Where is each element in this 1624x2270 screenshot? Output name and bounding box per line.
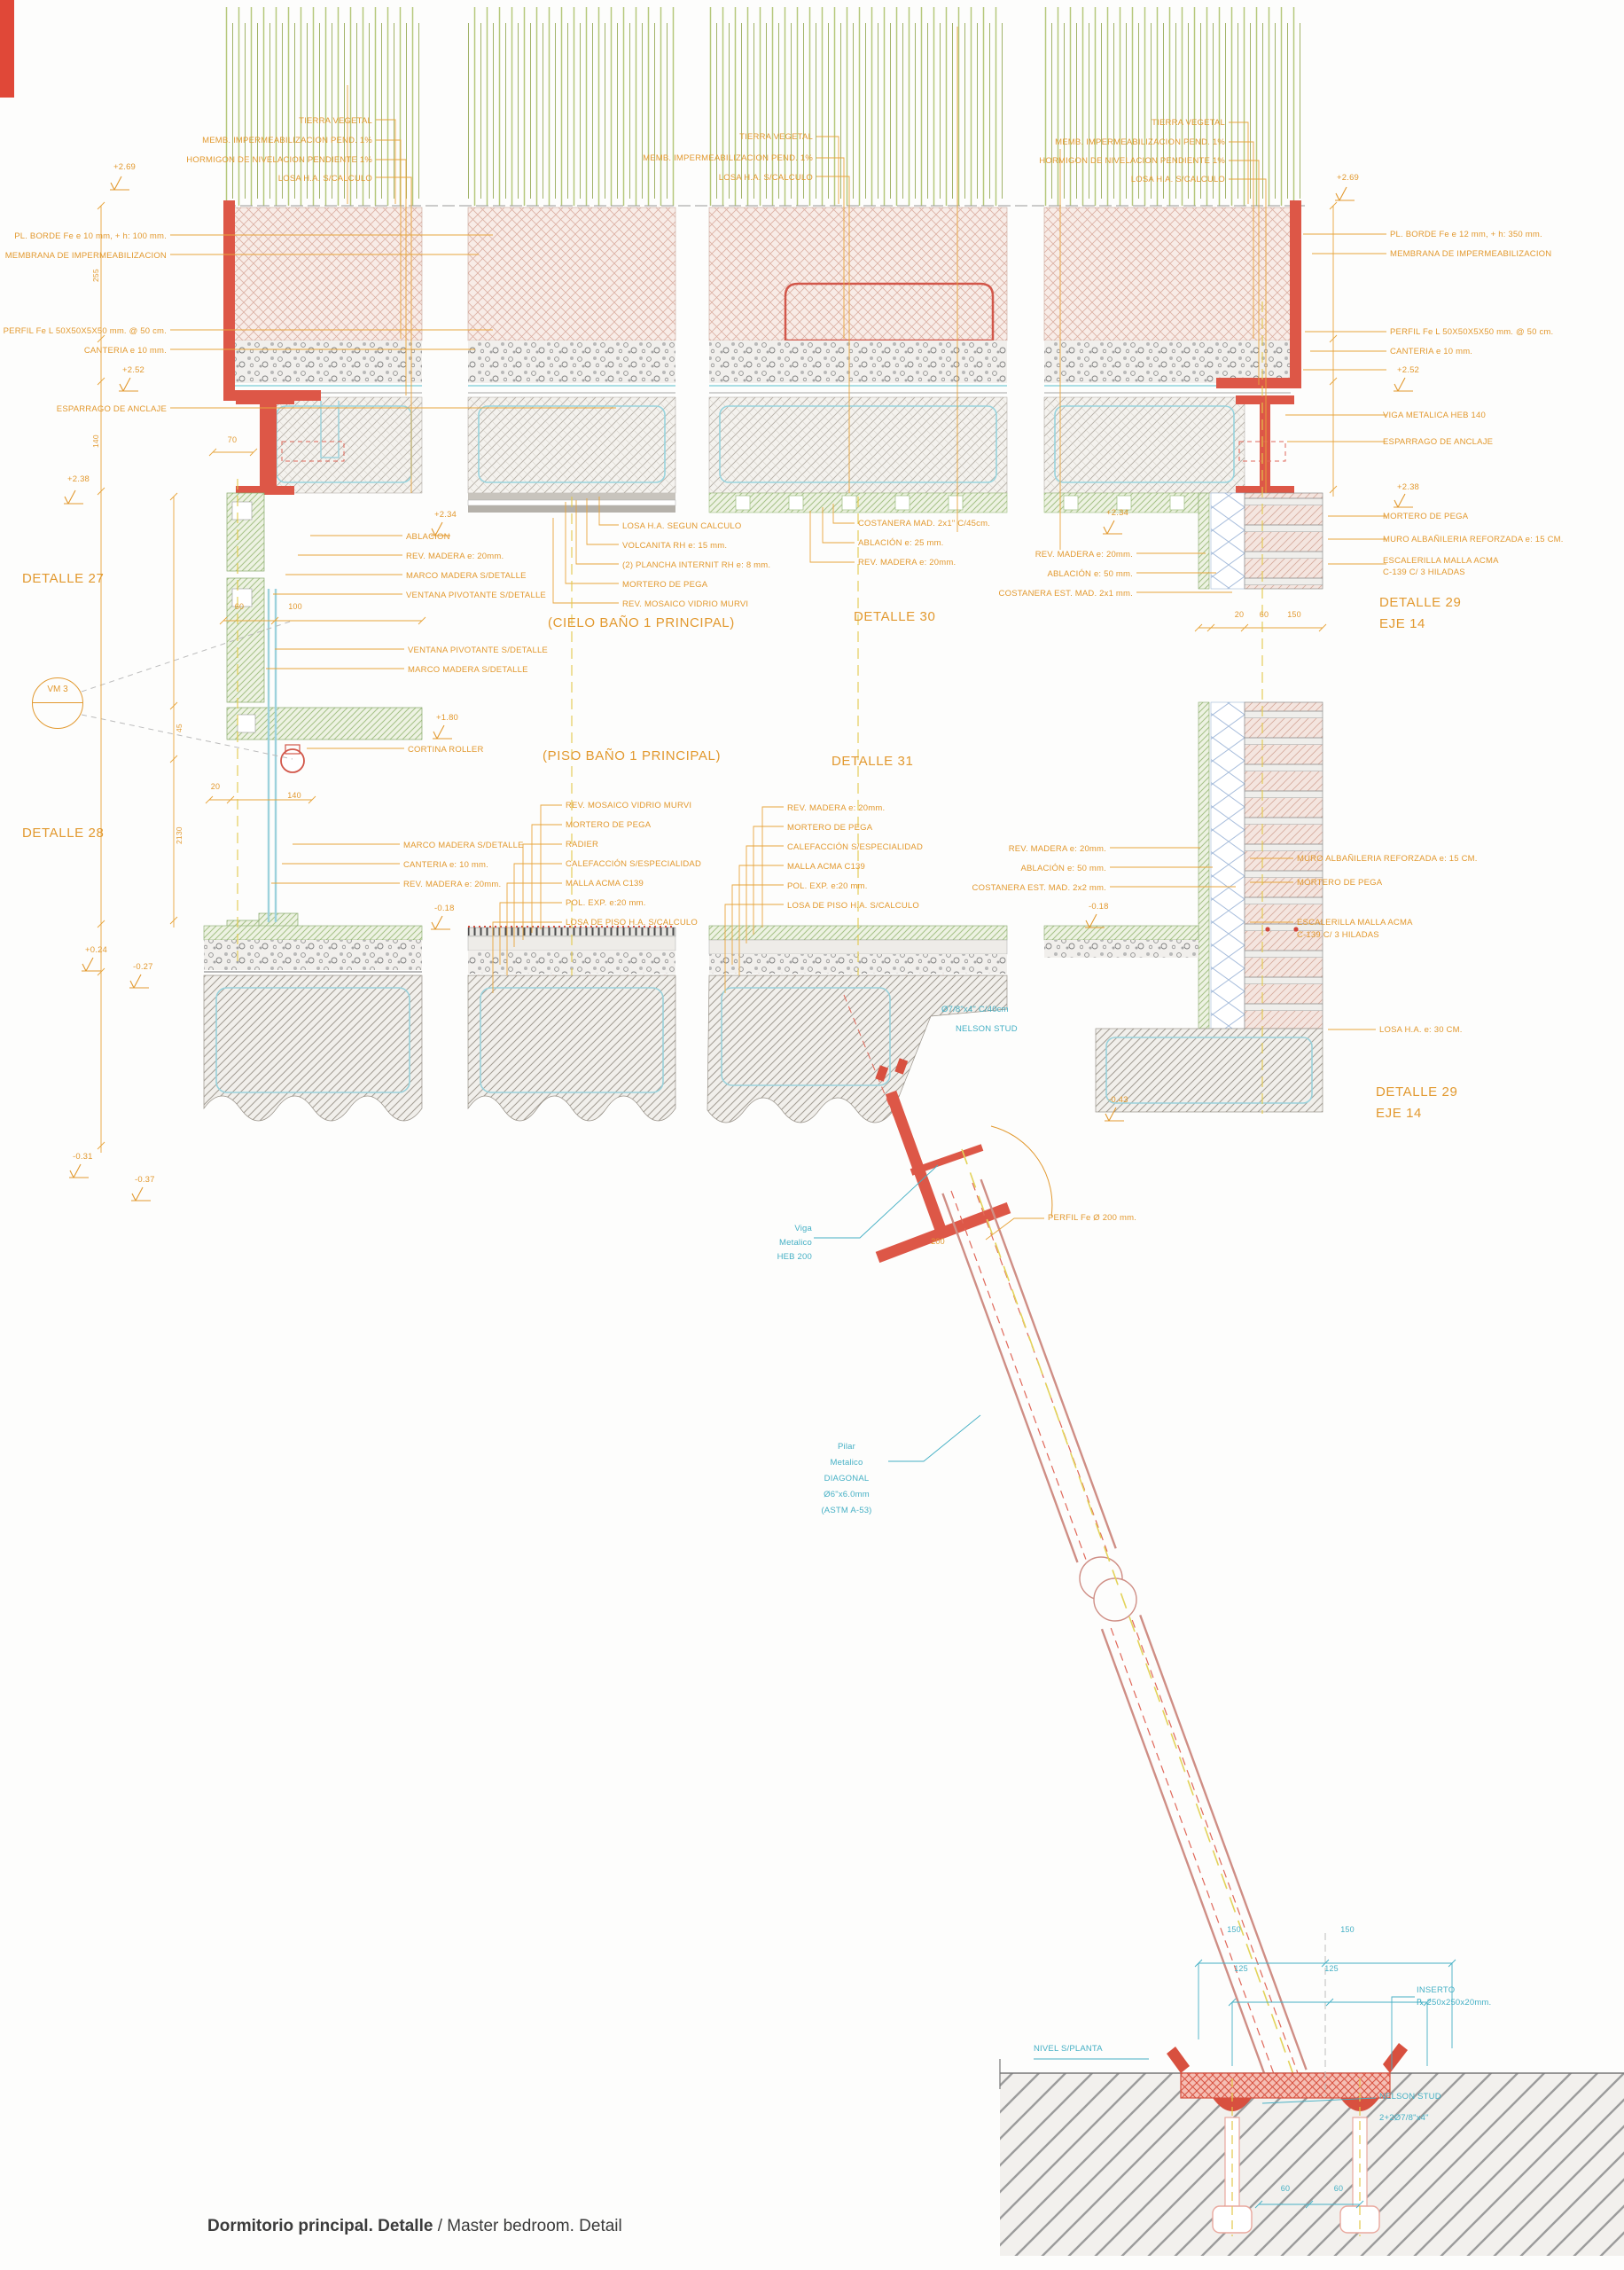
annotation-label: REV. MADERA e: 20mm. <box>787 804 885 813</box>
annotation-label: REV. MADERA e: 20mm. <box>858 559 956 567</box>
annotation-label: ABLACIÓN e: 50 mm. <box>1047 570 1133 579</box>
annotation-label: ESCALERILLA MALLA ACMA <box>1297 919 1413 928</box>
annotation-label: NIVEL S/PLANTA <box>1034 2045 1103 2054</box>
annotation-label: +2.38 <box>1397 483 1419 492</box>
annotation-label: HORMIGON DE NIVELACION PENDIENTE 1% <box>1039 157 1225 166</box>
annotation-label: TIERRA VEGETAL <box>1152 119 1225 128</box>
annotation-label: 20 <box>1235 611 1244 620</box>
drawing-canvas: TIERRA VEGETALMEMB. IMPERMEABILIZACION P… <box>0 0 1624 2270</box>
annotation-label: (ASTM A-53) <box>821 1507 871 1515</box>
detail-title: (CIELO BAÑO 1 PRINCIPAL) <box>548 616 735 631</box>
annotation-label: COSTANERA MAD. 2x1" C/45cm. <box>858 520 990 528</box>
annotation-label: +2.69 <box>113 163 136 172</box>
detail-title: EJE 14 <box>1379 617 1425 632</box>
detail-title: EJE 14 <box>1376 1107 1422 1122</box>
annotation-label: CANTERIA e 10 mm. <box>84 347 167 356</box>
annotation-label: PERFIL Fe Ø 200 mm. <box>1048 1214 1136 1223</box>
annotation-label: MEMBRANA DE IMPERMEABILIZACION <box>1390 250 1551 259</box>
annotation-label: VOLCANITA RH e: 15 mm. <box>622 542 727 551</box>
annotation-label: 150 <box>1227 1926 1241 1935</box>
detail-title: DETALLE 30 <box>854 610 935 625</box>
annotation-label: 100 <box>288 603 302 612</box>
annotation-label: -0.31 <box>73 1153 93 1162</box>
annotation-label: MEMBRANA DE IMPERMEABILIZACION <box>5 252 167 261</box>
annotation-label: ESPARRAGO DE ANCLAJE <box>57 405 167 414</box>
annotation-label: MORTERO DE PEGA <box>1383 513 1468 521</box>
annotation-label: 140 <box>92 434 100 448</box>
annotation-label: LOSA H.A. SEGUN CALCULO <box>622 522 741 531</box>
annotation-label: -0.43 <box>1108 1096 1128 1105</box>
annotation-label: PERFIL Fe L 50X50X5X50 mm. @ 50 cm. <box>4 327 167 336</box>
annotation-label: MEMB. IMPERMEABILIZACION PEND. 1% <box>643 154 813 163</box>
detail-title: DETALLE 29 <box>1376 1085 1457 1100</box>
annotation-label: REV. MADERA e: 20mm. <box>1035 551 1133 560</box>
annotation-label: MARCO MADERA S/DETALLE <box>406 572 527 581</box>
annotation-label: 150 <box>1340 1926 1355 1935</box>
annotation-label: +0.24 <box>85 946 107 955</box>
annotation-label: VENTANA PIVOTANTE S/DETALLE <box>406 591 546 600</box>
annotation-label: 140 <box>287 792 301 801</box>
annotation-label: +2.52 <box>1397 366 1419 375</box>
annotation-label: HEB 200 <box>777 1253 812 1262</box>
caption-en: / Master bedroom. Detail <box>433 2217 621 2235</box>
annotation-label: 125 <box>1234 1965 1248 1974</box>
detail-title: DETALLE 28 <box>22 826 104 841</box>
annotation-label: 255 <box>92 269 100 282</box>
annotation-label: MURO ALBAÑILERIA REFORZADA e: 15 CM. <box>1297 855 1478 864</box>
detail-title: DETALLE 29 <box>1379 596 1461 611</box>
annotation-label: REV. MADERA e: 20mm. <box>1009 845 1106 854</box>
annotation-label: 60 <box>1281 2185 1290 2194</box>
annotation-label: Metalico <box>779 1239 812 1248</box>
annotation-label: 60 <box>235 603 244 612</box>
caption-es: Dormitorio principal. Detalle <box>207 2217 433 2235</box>
annotation-label: PERFIL Fe L 50X50X5X50 mm. @ 50 cm. <box>1390 328 1553 337</box>
detail-title: DETALLE 31 <box>832 755 913 770</box>
annotation-label: 60 <box>1260 611 1269 620</box>
annotation-label: INSERTO <box>1417 1986 1455 1995</box>
annotation-label: Viga <box>794 1225 812 1233</box>
annotation-label: ℞ 250x250x20mm. <box>1417 1999 1491 2008</box>
annotation-label: MURO ALBAÑILERIA REFORZADA e: 15 CM. <box>1383 536 1564 544</box>
drawing-caption: Dormitorio principal. Detalle / Master b… <box>207 2217 622 2236</box>
annotation-label: +2.34 <box>434 511 457 520</box>
annotation-label: MARCO MADERA S/DETALLE <box>403 841 524 850</box>
annotation-label: 150 <box>1287 611 1301 620</box>
annotation-label: +2.38 <box>67 475 90 484</box>
annotation-label: CALEFACCIÓN S/ESPECIALIDAD <box>566 860 701 869</box>
annotation-label: TIERRA VEGETAL <box>299 117 372 126</box>
annotation-label: MEMB. IMPERMEABILIZACION PEND. 1% <box>202 137 372 145</box>
annotation-label: MORTERO DE PEGA <box>1297 879 1382 888</box>
annotation-label: ABLACION <box>406 533 450 542</box>
annotation-label: POL. EXP. e:20 mm. <box>787 882 868 891</box>
annotation-layer: TIERRA VEGETALMEMB. IMPERMEABILIZACION P… <box>0 0 1624 2270</box>
annotation-label: TIERRA VEGETAL <box>739 133 813 142</box>
annotation-label: ESCALERILLA MALLA ACMA <box>1383 557 1499 566</box>
annotation-label: NELSON STUD <box>1379 2093 1441 2102</box>
annotation-label: COSTANERA EST. MAD. 2x1 mm. <box>999 590 1133 599</box>
annotation-label: -0.18 <box>434 904 455 913</box>
annotation-label: 45 <box>176 724 183 732</box>
vm-badge: VM 3 <box>32 677 83 729</box>
annotation-label: ESPARRAGO DE ANCLAJE <box>1383 438 1493 447</box>
annotation-label: CANTERIA e: 10 mm. <box>403 861 488 870</box>
annotation-label: PL. BORDE Fe e 10 mm, + h: 100 mm. <box>14 232 167 241</box>
annotation-label: MALLA ACMA C139 <box>787 863 865 872</box>
annotation-label: VENTANA PIVOTANTE S/DETALLE <box>408 646 548 655</box>
annotation-label: MORTERO DE PEGA <box>622 581 707 590</box>
annotation-label: COSTANERA EST. MAD. 2x2 mm. <box>972 884 1106 893</box>
annotation-label: 125 <box>1324 1965 1339 1974</box>
annotation-label: -0.18 <box>1089 903 1109 912</box>
annotation-label: LOSA H.A. e: 30 CM. <box>1379 1026 1463 1035</box>
annotation-label: REV. MOSAICO VIDRIO MURVI <box>622 600 748 609</box>
annotation-label: -0.27 <box>133 963 153 972</box>
annotation-label: REV. MADERA e: 20mm. <box>406 552 504 561</box>
annotation-label: LOSA H.A. S/CALCULO <box>719 174 813 183</box>
annotation-label: LOSA H.A. S/CALCULO <box>1131 176 1225 184</box>
annotation-label: CORTINA ROLLER <box>408 746 484 755</box>
annotation-label: +2.52 <box>122 366 144 375</box>
annotation-label: LOSA DE PISO H.A. S/CALCULO <box>566 919 698 928</box>
corner-red-bar <box>0 0 14 98</box>
detail-title: DETALLE 27 <box>22 572 104 587</box>
annotation-label: 20 <box>211 783 220 792</box>
annotation-label: ABLACIÓN e: 50 mm. <box>1020 865 1106 873</box>
annotation-label: +2.69 <box>1337 174 1359 183</box>
annotation-label: REV. MADERA e: 20mm. <box>403 881 501 889</box>
annotation-label: POL. EXP. e:20 mm. <box>566 899 646 908</box>
annotation-label: HORMIGON DE NIVELACION PENDIENTE 1% <box>186 156 372 165</box>
annotation-label: Ø7/8"x4" C/40cm <box>941 1006 1009 1014</box>
annotation-label: MARCO MADERA S/DETALLE <box>408 666 528 675</box>
annotation-label: 2+2Ø7/8"x4" <box>1379 2114 1429 2123</box>
annotation-label: ABLACIÓN e: 25 mm. <box>858 539 944 548</box>
annotation-label: +1.80 <box>436 714 458 723</box>
annotation-label: CALEFACCIÓN S/ESPECIALIDAD <box>787 843 923 852</box>
annotation-label: PL. BORDE Fe e 12 mm, + h: 350 mm. <box>1390 231 1542 239</box>
annotation-label: Metalico <box>831 1459 863 1468</box>
annotation-label: 2130 <box>176 826 183 844</box>
annotation-label: 70 <box>228 436 237 445</box>
annotation-label: LOSA DE PISO H.A. S/CALCULO <box>787 902 919 911</box>
annotation-label: VIGA METALICA HEB 140 <box>1383 411 1486 420</box>
annotation-label: NELSON STUD <box>956 1025 1018 1034</box>
annotation-label: C-139 C/ 3 HILADAS <box>1383 568 1465 577</box>
vm-badge-label: VM 3 <box>47 685 67 694</box>
annotation-label: C-139 C/ 3 HILADAS <box>1297 931 1379 940</box>
annotation-label: (2) PLANCHA INTERNIT RH e: 8 mm. <box>622 561 770 570</box>
annotation-label: CANTERIA e 10 mm. <box>1390 348 1472 356</box>
annotation-label: DIAGONAL <box>824 1475 870 1483</box>
annotation-label: MALLA ACMA C139 <box>566 880 644 888</box>
annotation-label: 200 <box>931 1238 945 1247</box>
annotation-label: REV. MOSAICO VIDRIO MURVI <box>566 802 691 810</box>
annotation-label: MEMB. IMPERMEABILIZACION PEND. 1% <box>1055 138 1225 147</box>
annotation-label: RADIER <box>566 841 598 849</box>
annotation-label: 60 <box>1334 2185 1343 2194</box>
detail-title: (PISO BAÑO 1 PRINCIPAL) <box>543 749 721 764</box>
annotation-label: Ø6"x6.0mm <box>824 1491 870 1499</box>
annotation-label: MORTERO DE PEGA <box>787 824 872 833</box>
annotation-label: Pilar <box>838 1443 855 1452</box>
annotation-label: MORTERO DE PEGA <box>566 821 651 830</box>
annotation-label: LOSA H.A. S/CALCULO <box>278 175 372 184</box>
annotation-label: -0.37 <box>135 1176 155 1185</box>
annotation-label: +2.34 <box>1106 509 1128 518</box>
